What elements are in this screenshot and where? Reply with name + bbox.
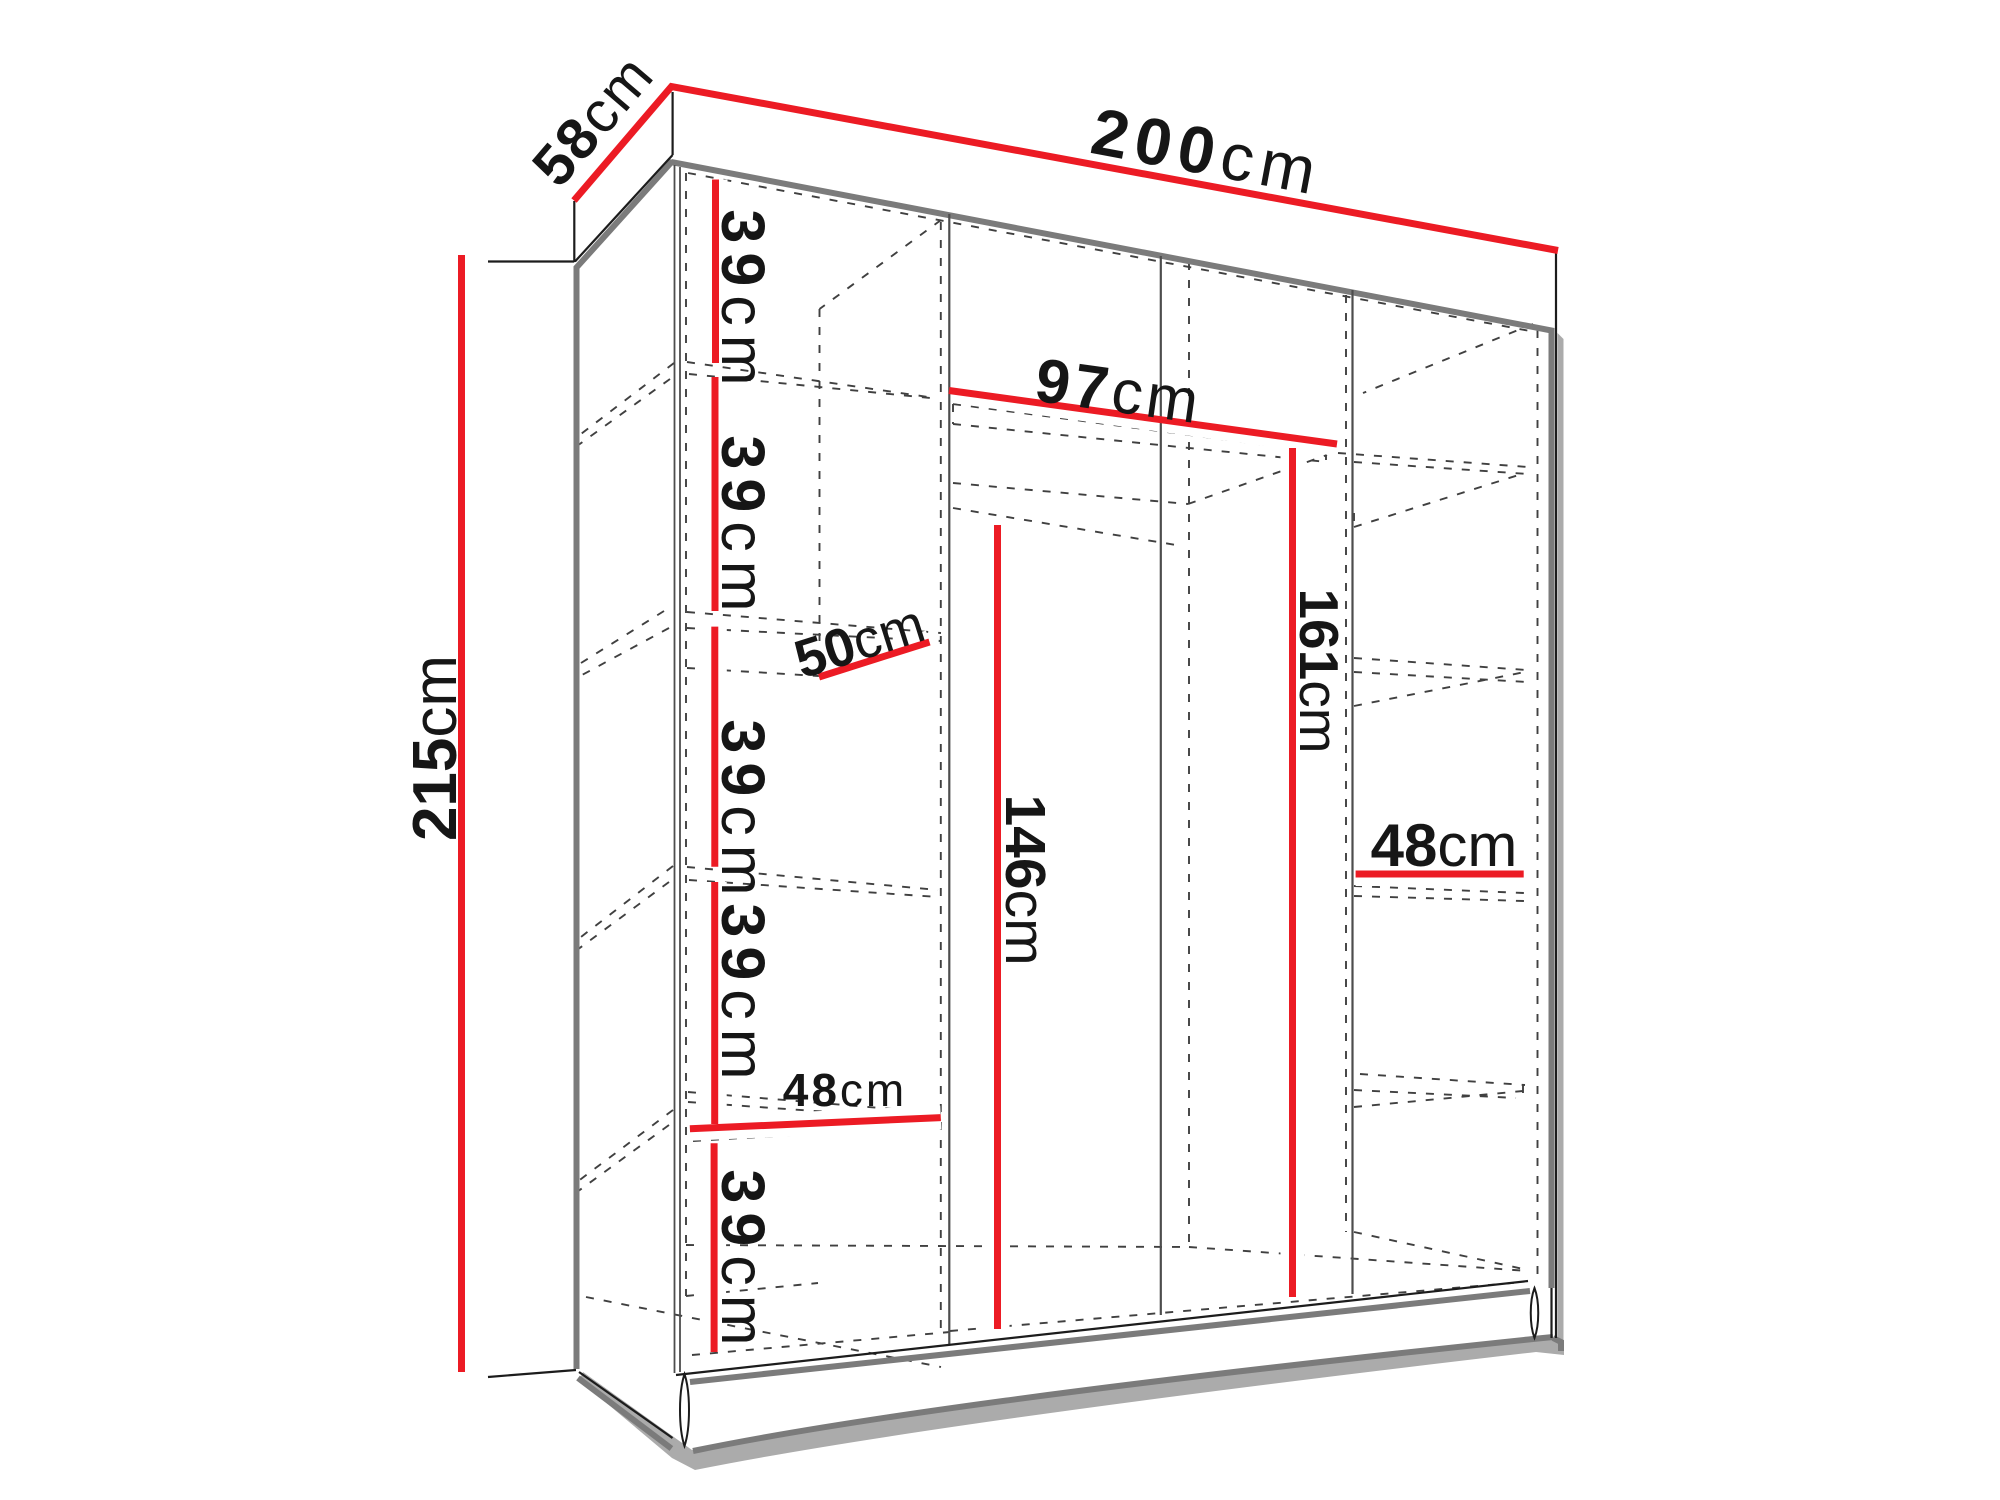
svg-text:39cm: 39cm bbox=[709, 903, 777, 1088]
svg-text:39cm: 39cm bbox=[709, 209, 777, 394]
svg-text:48cm: 48cm bbox=[783, 1064, 908, 1116]
svg-text:39cm: 39cm bbox=[709, 719, 777, 904]
svg-text:161cm: 161cm bbox=[1288, 588, 1350, 753]
svg-text:215cm: 215cm bbox=[401, 655, 470, 841]
svg-text:39cm: 39cm bbox=[709, 435, 777, 620]
svg-text:39cm: 39cm bbox=[709, 1169, 777, 1354]
svg-text:48cm: 48cm bbox=[1371, 812, 1518, 879]
svg-text:146cm: 146cm bbox=[993, 794, 1057, 965]
